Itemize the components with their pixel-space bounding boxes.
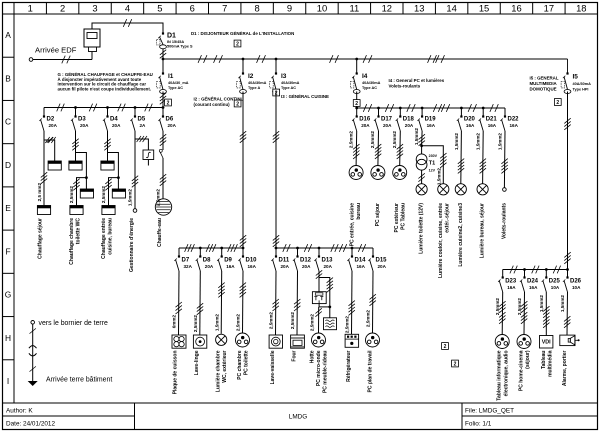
svg-text:extér.-séjour: extér.-séjour [444,203,450,233]
svg-text:2,5mm2: 2,5mm2 [495,298,500,316]
svg-text:40A/30mA: 40A/30mA [281,81,300,85]
svg-text:20A: 20A [49,123,58,128]
svg-text:D20: D20 [464,117,476,123]
svg-text:Lave-linge: Lave-linge [194,350,200,375]
svg-text:500mA Type S: 500mA Type S [167,45,193,49]
svg-text:Volets-roulants: Volets-roulants [501,203,507,239]
svg-text:T1: T1 [429,160,435,166]
svg-text:40A/30mA: 40A/30mA [573,82,592,86]
svg-text:6mm2: 6mm2 [172,315,177,329]
svg-text:2,5mm2: 2,5mm2 [392,131,397,149]
svg-text:20A: 20A [378,264,387,269]
svg-text:Chauffe-eau: Chauffe-eau [157,218,163,247]
svg-text:PC home-cinema: PC home-cinema [519,350,525,391]
svg-text:F: F [5,246,10,256]
svg-text:D2: D2 [47,117,55,123]
svg-text:8: 8 [255,3,260,14]
svg-text:D6: D6 [166,117,174,123]
svg-text:PC plan de travail: PC plan de travail [368,350,374,393]
svg-text:D12: D12 [300,258,312,264]
svg-text:H: H [5,333,11,343]
svg-text:2: 2 [60,3,65,14]
svg-text:VDI: VDI [542,340,551,346]
svg-text:Lumière bureau, séjour: Lumière bureau, séjour [480,203,486,258]
svg-text:D22: D22 [508,117,520,123]
svg-text:2: 2 [236,41,239,47]
svg-text:16A: 16A [510,123,519,128]
svg-text:2,5mm2: 2,5mm2 [193,315,198,333]
svg-text:20A: 20A [281,264,290,269]
svg-text:16A: 16A [488,123,497,128]
svg-text:10A: 10A [572,285,581,290]
svg-text:Type AC: Type AC [281,86,296,90]
svg-text:Type HPI: Type HPI [573,88,589,92]
svg-text:2,5mm2: 2,5mm2 [345,316,350,334]
svg-text:Type AC: Type AC [168,86,183,90]
svg-text:multimédia: multimédia [547,350,553,377]
svg-text:2,5mm2: 2,5mm2 [310,314,315,332]
svg-text:D21: D21 [486,117,498,123]
svg-text:2: 2 [355,101,358,107]
svg-text:D11: D11 [279,258,290,264]
svg-text:12V: 12V [429,168,436,172]
svg-text:20A: 20A [112,123,121,128]
svg-text:2,5mm2: 2,5mm2 [69,186,74,204]
svg-text:I1: I1 [168,73,174,80]
svg-text:16A: 16A [226,264,235,269]
svg-text:(séjour): (séjour) [525,350,531,369]
svg-text:D4: D4 [110,117,118,123]
svg-text:Lave-vaisselle: Lave-vaisselle [270,350,276,384]
svg-text:I5: I5 [573,74,579,81]
svg-text:1,5mm2: 1,5mm2 [128,189,133,207]
svg-text:20A: 20A [383,123,392,128]
svg-text:(courant continu): (courant continu) [194,102,231,107]
svg-text:2,5mm2: 2,5mm2 [236,314,241,332]
svg-text:10A: 10A [551,285,560,290]
svg-text:16A: 16A [466,123,475,128]
svg-text:2,5mm2: 2,5mm2 [290,312,295,330]
svg-text:B: B [5,73,11,83]
svg-text:D1: D1 [167,33,176,40]
svg-text:PC Tableau: PC Tableau [401,203,407,230]
svg-text:PC toilette: PC toilette [244,350,250,375]
svg-text:1,5mm2: 1,5mm2 [539,295,544,313]
svg-text:File: LMDG_QET: File: LMDG_QET [465,408,514,415]
svg-text:I4: I4 [362,73,368,80]
svg-text:Plaque de cuisson: Plaque de cuisson [173,351,179,395]
svg-text:G: G [5,290,12,300]
svg-text:6: 6 [190,3,195,14]
svg-text:Lumière couloir, cuisine, entr: Lumière couloir, cuisine, entrée [438,203,444,278]
svg-text:D24: D24 [527,279,539,285]
svg-text:PC chambre: PC chambre [237,350,243,379]
svg-text:16A: 16A [507,285,516,290]
svg-text:230V: 230V [429,154,438,158]
svg-text:15: 15 [479,3,489,14]
svg-text:1: 1 [28,3,33,14]
svg-text:D16: D16 [359,117,371,123]
svg-text:D10: D10 [246,258,258,264]
svg-text:20A: 20A [361,123,370,128]
svg-text:32A: 32A [184,264,193,269]
svg-text:1,5mm2: 1,5mm2 [476,133,481,151]
svg-text:Gestionnaire d'énergie: Gestionnaire d'énergie [129,218,135,272]
svg-text:1,5mm2: 1,5mm2 [436,168,441,186]
svg-text:DOMOTIQUE: DOMOTIQUE [530,86,557,91]
svg-text:Author: K: Author: K [6,408,33,415]
svg-text:PC extérieur: PC extérieur [394,203,400,233]
svg-text:16A: 16A [248,264,257,269]
svg-text:2,5mm2: 2,5mm2 [366,310,371,328]
svg-text:LMDG: LMDG [289,414,307,421]
svg-text:D26: D26 [570,279,582,285]
svg-text:D5: D5 [138,117,146,123]
svg-text:PC micro-onde: PC micro-onde [316,350,322,386]
svg-text:D23: D23 [505,279,517,285]
svg-text:C: C [5,117,11,127]
svg-text:20A: 20A [324,264,333,269]
svg-text:Tableau: Tableau [541,351,547,370]
svg-text:D14: D14 [355,258,367,264]
svg-text:Type AC: Type AC [362,86,377,90]
svg-text:D3: D3 [78,117,86,123]
svg-text:bureau: bureau [356,203,362,220]
svg-text:7: 7 [222,3,227,14]
svg-text:Volets-roulants: Volets-roulants [389,84,421,89]
svg-text:D17: D17 [381,117,393,123]
svg-text:10: 10 [317,3,327,14]
svg-text:I2: I2 [248,73,254,80]
svg-text:D8: D8 [203,258,211,264]
svg-text:A: A [5,30,11,40]
svg-text:16: 16 [511,3,521,14]
svg-text:Chauffage chambre: Chauffage chambre [69,218,75,265]
svg-text:2,5mm2: 2,5mm2 [370,131,375,149]
svg-text:vers le bornier de terre: vers le bornier de terre [39,320,108,327]
svg-text:PC meuble-rideau: PC meuble-rideau [323,351,329,394]
svg-text:16A: 16A [357,264,366,269]
svg-text:Type A: Type A [248,86,260,90]
svg-text:Chauffage entrée: Chauffage entrée [101,218,107,259]
svg-text:40A/30mA: 40A/30mA [248,81,267,85]
svg-text:2,5mm2: 2,5mm2 [348,131,353,149]
svg-text:12: 12 [382,3,392,14]
svg-text:D7: D7 [182,258,190,264]
svg-text:4: 4 [125,3,130,14]
svg-text:5: 5 [157,3,162,14]
svg-text:13: 13 [414,3,424,14]
svg-text:I5 : GENERAL: I5 : GENERAL [530,76,559,81]
svg-text:1,5mm2: 1,5mm2 [454,133,459,151]
svg-text:Tableau informatique: Tableau informatique [497,350,503,400]
svg-text:PC entrée, cuisine: PC entrée, cuisine [350,203,356,247]
svg-text:Réfrigérateur: Réfrigérateur [346,350,352,381]
svg-text:2: 2 [236,101,239,107]
svg-text:2A: 2A [140,123,147,128]
svg-text:D1 : DISJONTEUR GÉNÉRAL de L'I: D1 : DISJONTEUR GÉNÉRAL de L'INSTALLATIO… [191,31,294,36]
svg-text:20A: 20A [302,264,311,269]
svg-text:électronique, audio: électronique, audio [503,351,509,397]
svg-text:17: 17 [544,3,554,14]
svg-text:Arrivée terre bâtiment: Arrivée terre bâtiment [46,376,112,383]
svg-text:16A: 16A [529,285,538,290]
svg-text:20A: 20A [205,264,214,269]
svg-text:WC, extérieur: WC, extérieur [222,350,228,382]
svg-text:1,5mm2: 1,5mm2 [497,133,502,151]
svg-text:20A: 20A [405,123,414,128]
svg-text:cuisine, bureau: cuisine, bureau [108,218,114,255]
svg-text:3: 3 [92,3,97,14]
svg-text:Chauffage séjour: Chauffage séjour [38,218,44,259]
svg-text:2: 2 [167,100,170,106]
svg-text:Arrivée EDF: Arrivée EDF [35,46,77,55]
svg-text:I4 : General PC et lumières: I4 : General PC et lumières [389,78,445,83]
svg-text:Date: 24/01/2012: Date: 24/01/2012 [6,421,55,428]
svg-text:20A: 20A [168,123,177,128]
svg-text:D: D [5,160,11,170]
svg-text:toilette WC: toilette WC [76,218,82,244]
svg-text:20A: 20A [80,123,89,128]
svg-text:MULTIMEDIA: MULTIMEDIA [530,81,558,86]
svg-text:2,5 mm2: 2,5 mm2 [37,183,42,202]
svg-text:D9: D9 [224,258,232,264]
svg-text:2,5mm2: 2,5mm2 [101,186,106,204]
svg-text:PC séjour: PC séjour [375,203,381,226]
svg-text:D18: D18 [403,117,415,123]
svg-text:40A/30_mA: 40A/30_mA [168,81,189,85]
svg-text:Lumière chambre: Lumière chambre [216,350,222,392]
svg-text:2: 2 [454,361,457,367]
svg-text:D25: D25 [549,279,561,285]
svg-text:Alarme, portier: Alarme, portier [562,350,568,386]
svg-text:I3 : GÉNÉRAL CUISINE: I3 : GÉNÉRAL CUISINE [281,94,329,99]
svg-text:D13: D13 [322,258,334,264]
svg-text:16A: 16A [427,123,436,128]
svg-text:1,5mm2: 1,5mm2 [560,295,565,313]
svg-text:40A/30mA: 40A/30mA [362,81,381,85]
svg-text:D19: D19 [425,117,437,123]
svg-text:2: 2 [556,100,559,106]
svg-text:Folio: 1/1: Folio: 1/1 [465,421,492,428]
svg-text:I: I [7,376,9,386]
svg-text:Four: Four [292,350,298,361]
svg-text:Lumière cuisine2, cuisine3: Lumière cuisine2, cuisine3 [458,203,464,267]
svg-text:E: E [5,203,11,213]
svg-text:2,5mm2: 2,5mm2 [269,312,274,330]
svg-text:aucun fil pilote n'est coupe i: aucun fil pilote n'est coupe individuell… [58,86,152,91]
svg-text:D15: D15 [376,258,388,264]
svg-text:18: 18 [576,3,586,14]
svg-text:I3: I3 [281,73,287,80]
svg-text:1,5mm2: 1,5mm2 [414,128,419,146]
svg-text:1,5mm2: 1,5mm2 [214,314,219,332]
svg-text:2: 2 [444,344,447,350]
svg-text:Lumière toilette (12V): Lumière toilette (12V) [419,203,425,254]
svg-text:9: 9 [287,3,292,14]
svg-text:IN 15/45A: IN 15/45A [167,40,184,44]
svg-text:2,5mm2: 2,5mm2 [517,298,522,316]
svg-text:14: 14 [446,3,456,14]
svg-text:11: 11 [350,3,360,14]
svg-text:Hotte: Hotte [310,350,316,363]
